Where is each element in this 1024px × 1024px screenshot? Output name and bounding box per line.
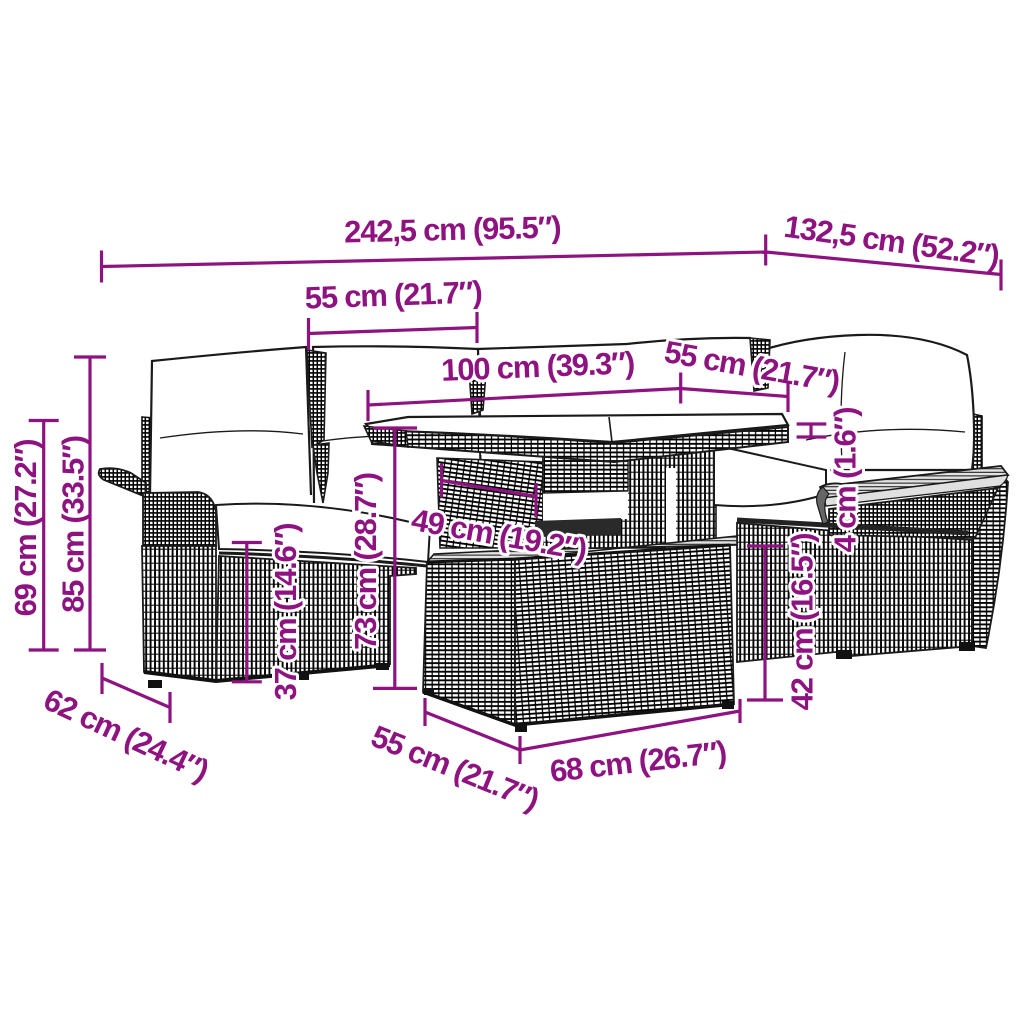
svg-text:73 cm (28.7″): 73 cm (28.7″) bbox=[348, 473, 383, 650]
svg-text:37 cm (14.6″): 37 cm (14.6″) bbox=[268, 524, 303, 701]
svg-text:242,5 cm (95.5″): 242,5 cm (95.5″) bbox=[344, 210, 561, 250]
svg-text:69 cm (27.2″): 69 cm (27.2″) bbox=[8, 440, 43, 617]
svg-text:85 cm (33.5″): 85 cm (33.5″) bbox=[56, 436, 91, 613]
svg-text:55 cm (21.7″): 55 cm (21.7″) bbox=[304, 274, 482, 315]
svg-text:4 cm (1.6″): 4 cm (1.6″) bbox=[828, 408, 863, 553]
svg-text:42 cm (16.5″): 42 cm (16.5″) bbox=[785, 534, 820, 711]
